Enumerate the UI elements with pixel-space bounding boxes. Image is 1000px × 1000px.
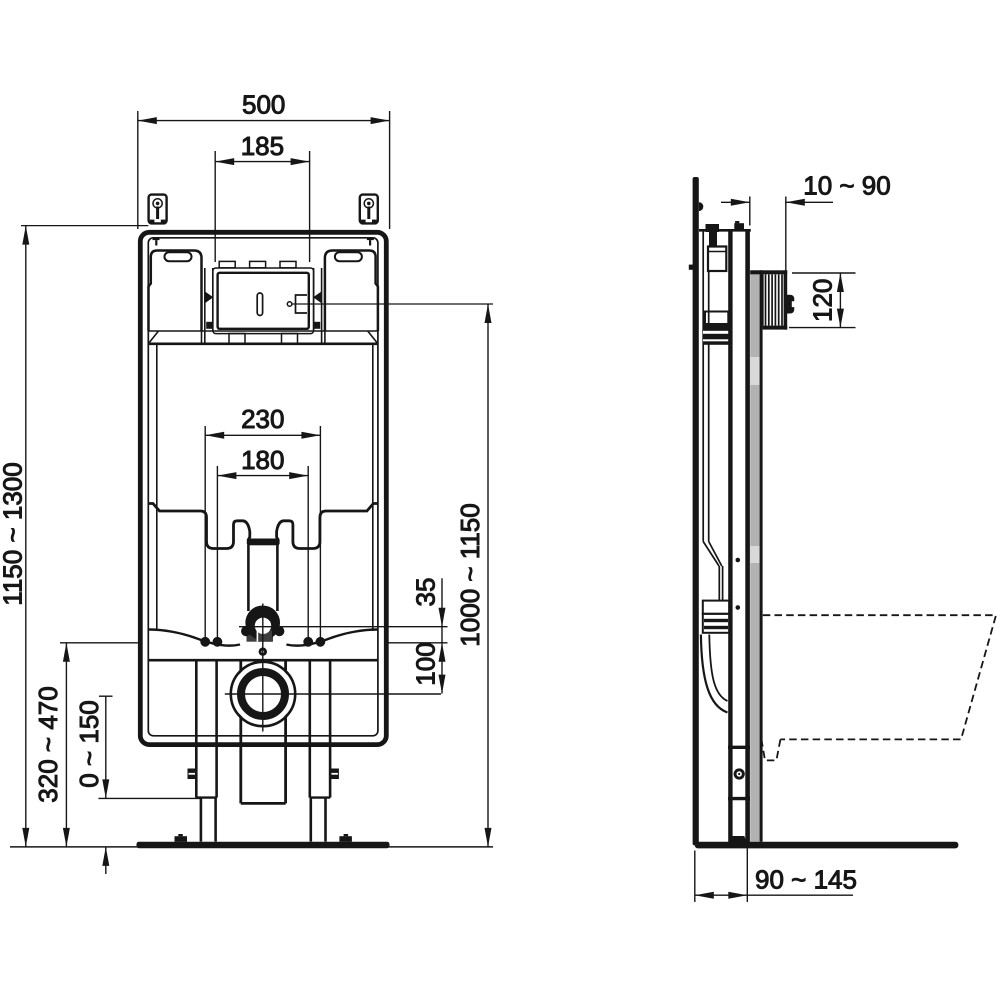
- svg-text:500: 500: [242, 90, 285, 120]
- svg-text:185: 185: [241, 131, 284, 161]
- svg-text:0 ~ 150: 0 ~ 150: [74, 700, 104, 787]
- svg-text:35: 35: [411, 578, 441, 607]
- svg-text:1150 ~ 1300: 1150 ~ 1300: [0, 462, 28, 605]
- svg-text:100: 100: [411, 642, 441, 685]
- svg-text:1000 ~ 1150: 1000 ~ 1150: [455, 503, 485, 646]
- svg-text:120: 120: [808, 279, 838, 322]
- svg-text:180: 180: [241, 445, 284, 475]
- svg-text:320 ~ 470: 320 ~ 470: [33, 686, 63, 802]
- svg-text:230: 230: [241, 404, 284, 434]
- svg-text:90 ~ 145: 90 ~ 145: [755, 865, 857, 895]
- svg-text:10 ~ 90: 10 ~ 90: [803, 171, 890, 201]
